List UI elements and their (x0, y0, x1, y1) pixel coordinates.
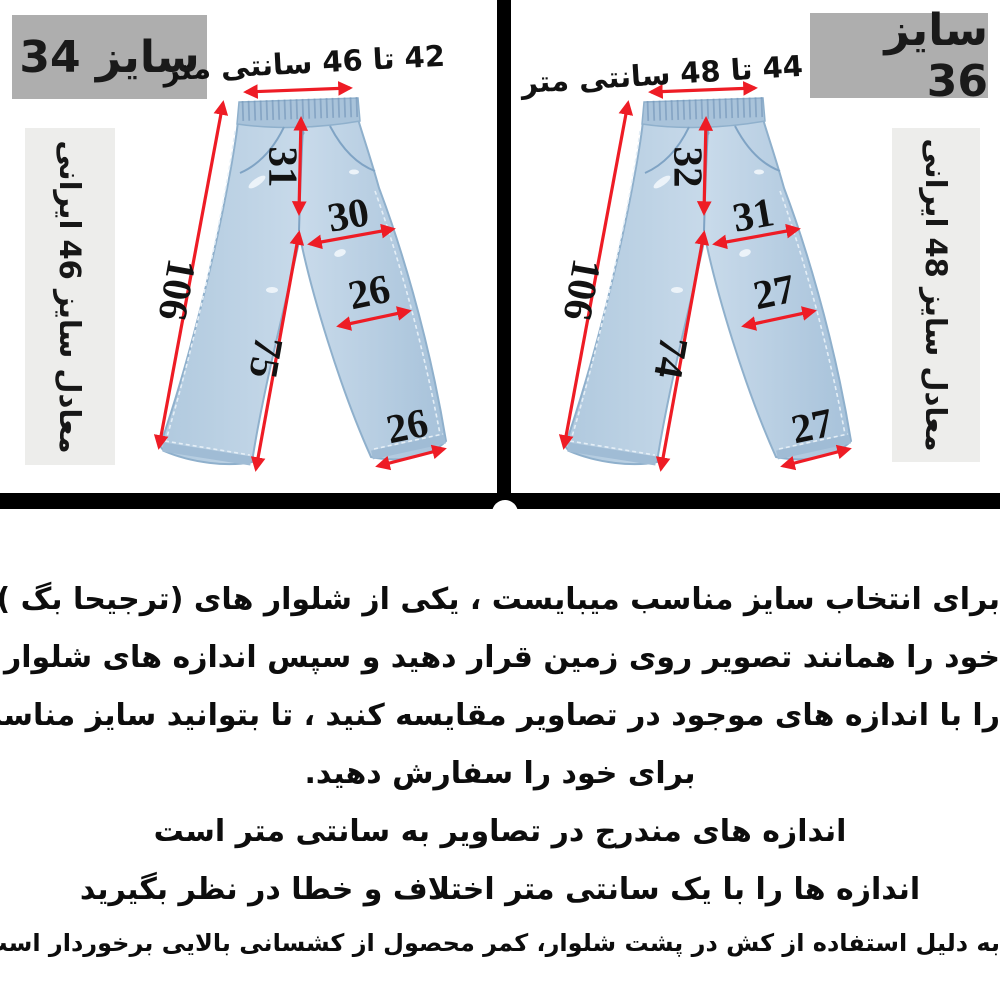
hip-value-right: 31 (729, 188, 777, 240)
instruction-line-3: را با اندازه های موجود در تصاویر مقایسه … (0, 687, 1000, 745)
iran-size-equivalent-right-text: معادل سایز 48 ایرانی (919, 130, 953, 460)
size-label-right: سایز 36 (810, 13, 988, 98)
instruction-line-2: خود را همانند تصویر روی زمین قرار دهید و… (0, 629, 1000, 687)
instructions-text: برای انتخاب سایز مناسب میبایست ، یکی از … (0, 571, 1000, 967)
rise-value-left: 31 (261, 147, 307, 188)
outer-length-value-left: 106 (150, 256, 206, 325)
instruction-line-7: به دلیل استفاده از کش در پشت شلوار، کمر … (0, 919, 1000, 967)
instruction-line-4: برای خود را سفارش دهید. (0, 745, 1000, 803)
size-guide-image: 106 31 30 75 26 26 106 32 31 74 27 27 سا… (0, 0, 1000, 1000)
inseam-value-right: 74 (645, 334, 697, 382)
instruction-line-6: اندازه ها را با یک سانتی متر اختلاف و خط… (0, 861, 1000, 919)
outer-length-value-right: 106 (555, 256, 611, 325)
size-label-right-text: سایز 36 (810, 5, 988, 107)
divider-notch (492, 500, 518, 526)
inseam-value-left: 75 (240, 334, 292, 382)
hip-value-left: 30 (324, 188, 372, 240)
instruction-line-1: برای انتخاب سایز مناسب میبایست ، یکی از … (0, 571, 1000, 629)
waist-arrow-left (246, 88, 350, 92)
iran-size-equivalent-right: معادل سایز 48 ایرانی (892, 128, 980, 462)
rise-value-right: 32 (666, 147, 712, 188)
iran-size-equivalent-left: معادل سایز 46 ایرانی (25, 128, 115, 465)
iran-size-equivalent-left-text: معادل سایز 46 ایرانی (53, 132, 87, 462)
instruction-line-5: اندازه های مندرج در تصاویر به سانتی متر … (0, 803, 1000, 861)
vertical-divider (497, 0, 511, 493)
